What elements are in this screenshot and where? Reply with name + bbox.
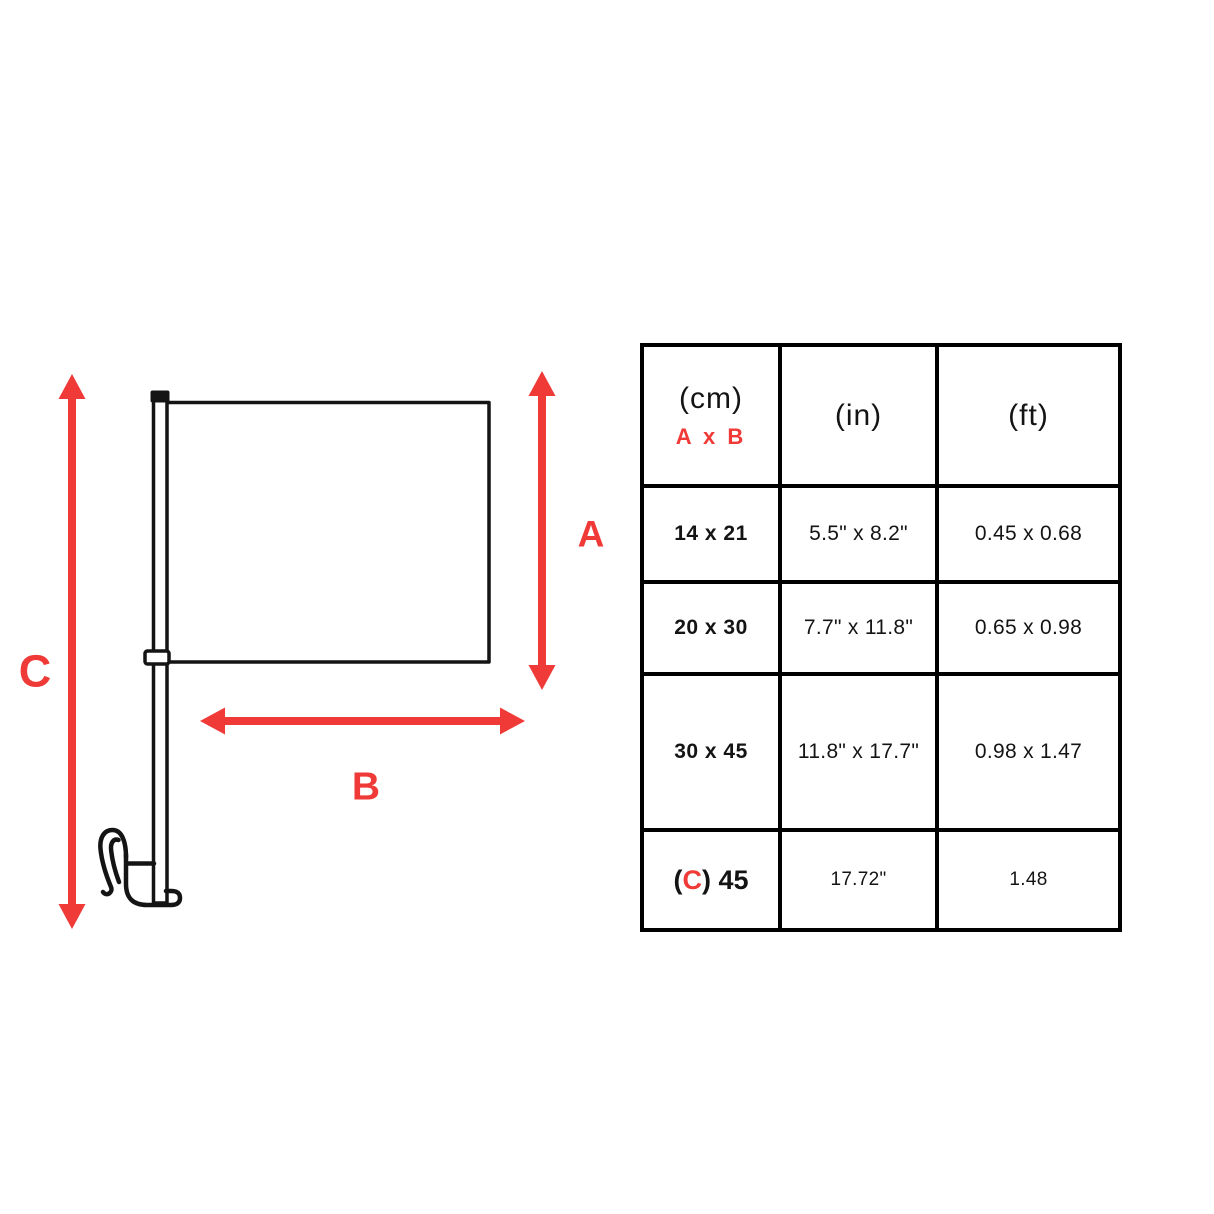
- header-cell-in: (in): [780, 345, 937, 486]
- arrow-head-up: [529, 371, 556, 396]
- cell-inch-size: 11.8" x 17.7": [780, 674, 937, 830]
- size-table: (cm) A x B (in) (ft) 14 x 21 5.5": [640, 343, 1122, 932]
- feet-size-value: 0.98 x 1.47: [975, 740, 1082, 763]
- arrow-head-right: [500, 708, 525, 735]
- c45-rest: ) 45: [702, 865, 749, 895]
- arrow-head-left: [200, 708, 225, 735]
- c45-c-highlight: C: [682, 865, 702, 895]
- header-cell-ft: (ft): [937, 345, 1120, 486]
- dimension-label-c: C: [19, 649, 52, 694]
- unit-cm-label: (cm): [644, 382, 778, 416]
- header-cell-cm: (cm) A x B: [642, 345, 780, 486]
- a-x-b-label: A x B: [644, 424, 778, 450]
- pole-height-arrow-c: [59, 374, 86, 929]
- cell-cm-size: (C) 45: [642, 830, 780, 930]
- cm-size-label: 20 x 30: [674, 616, 748, 639]
- cm-size-label: 14 x 21: [674, 522, 748, 545]
- size-conversion-table: (cm) A x B (in) (ft) 14 x 21 5.5": [640, 343, 1122, 932]
- table-row-c45: (C) 45 17.72" 1.48: [642, 830, 1120, 930]
- cell-feet-size: 0.98 x 1.47: [937, 674, 1120, 830]
- flag-size-infographic: A B C (cm) A x B (in) (ft): [0, 0, 1214, 1214]
- pole-cap: [151, 391, 170, 403]
- cell-inch-size: 17.72": [780, 830, 937, 930]
- c45-size-label: (C) 45: [673, 865, 748, 895]
- cm-size-label: 30 x 45: [674, 740, 748, 763]
- width-arrow-b: [200, 708, 525, 735]
- cell-feet-size: 0.45 x 0.68: [937, 486, 1120, 582]
- flag-outline: [165, 403, 489, 663]
- cell-feet-size: 1.48: [937, 830, 1120, 930]
- cell-inch-size: 7.7" x 11.8": [780, 582, 937, 674]
- dimension-label-b: B: [352, 768, 380, 807]
- feet-size-value: 1.48: [1009, 869, 1047, 890]
- cell-inch-size: 5.5" x 8.2": [780, 486, 937, 582]
- table-row-20x30: 20 x 30 7.7" x 11.8" 0.65 x 0.98: [642, 582, 1120, 674]
- window-clip-hook-inner: [111, 840, 119, 882]
- table-row-30x45: 30 x 45 11.8" x 17.7" 0.98 x 1.47: [642, 674, 1120, 830]
- dimension-label-a: A: [578, 516, 605, 553]
- table-row-14x21: 14 x 21 5.5" x 8.2" 0.45 x 0.68: [642, 486, 1120, 582]
- feet-size-value: 0.45 x 0.68: [975, 522, 1082, 545]
- table-header-row: (cm) A x B (in) (ft): [642, 345, 1120, 486]
- feet-size-value: 0.65 x 0.98: [975, 616, 1082, 639]
- unit-ft-label: (ft): [1008, 399, 1049, 432]
- cell-cm-size: 30 x 45: [642, 674, 780, 830]
- cell-cm-size: 20 x 30: [642, 582, 780, 674]
- inch-size-value: 17.72": [830, 869, 886, 890]
- inch-size-value: 11.8" x 17.7": [798, 740, 919, 763]
- inch-size-value: 7.7" x 11.8": [804, 616, 913, 639]
- unit-in-label: (in): [835, 399, 882, 432]
- height-arrow-a: [529, 371, 556, 690]
- arrow-head-down: [529, 665, 556, 690]
- arrow-head-up: [59, 374, 86, 399]
- cell-cm-size: 14 x 21: [642, 486, 780, 582]
- cell-feet-size: 0.65 x 0.98: [937, 582, 1120, 674]
- arrow-head-down: [59, 904, 86, 929]
- inch-size-value: 5.5" x 8.2": [809, 522, 908, 545]
- pole-collar: [145, 651, 169, 664]
